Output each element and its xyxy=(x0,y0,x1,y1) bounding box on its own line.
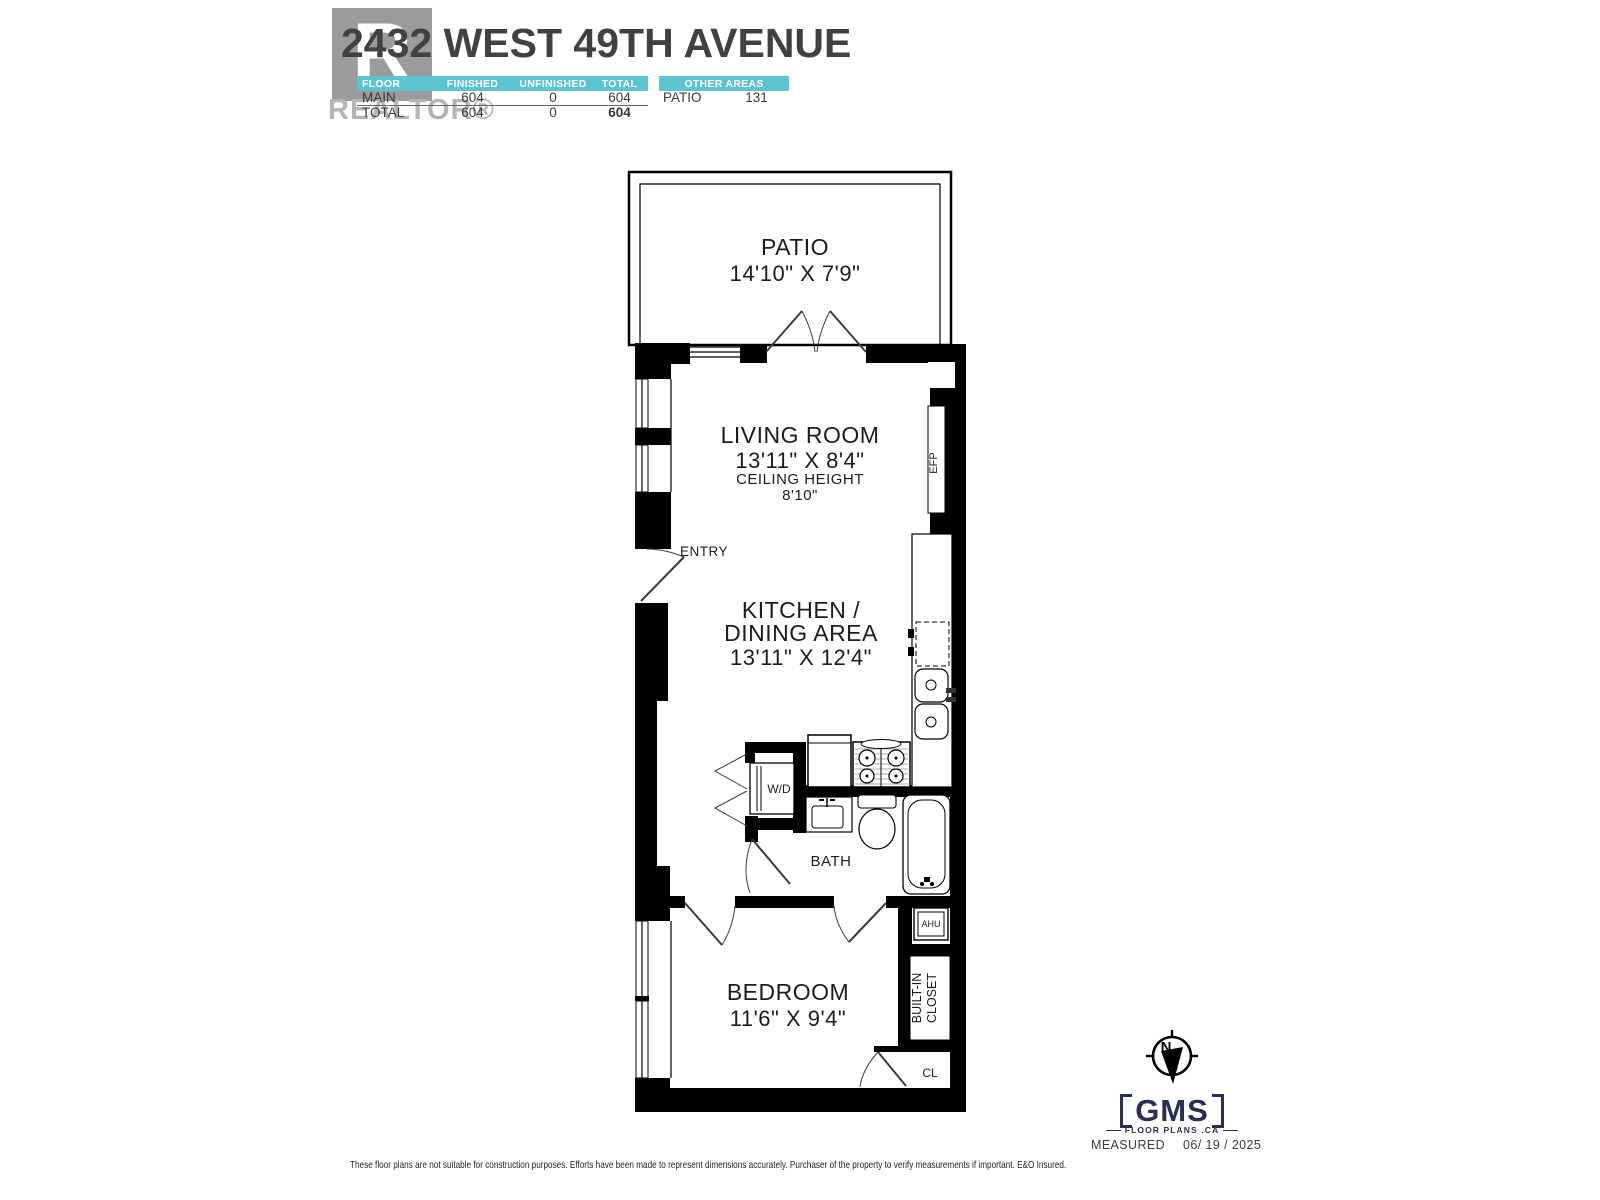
table-row-main: MAIN 604 0 604 xyxy=(357,91,648,105)
entry-label: ENTRY xyxy=(680,544,728,559)
bracket-left-icon xyxy=(1120,1094,1132,1128)
bath-sink xyxy=(806,797,852,832)
col-total: TOTAL xyxy=(591,78,648,90)
area-table: FLOOR FINISHED UNFINISHED TOTAL MAIN 604… xyxy=(357,76,648,120)
disclaimer-text: These floor plans are not suitable for c… xyxy=(350,1159,1066,1171)
builtin-closet-label-2: CLOSET xyxy=(925,973,939,1023)
page-title: 2432 WEST 49TH AVENUE xyxy=(341,20,851,67)
patio-label: PATIO xyxy=(761,234,829,260)
bracket-right-icon xyxy=(1212,1094,1224,1128)
stove xyxy=(853,740,910,788)
cell-floor: MAIN xyxy=(357,91,430,105)
col-floor: FLOOR xyxy=(357,78,430,90)
cell-name: PATIO xyxy=(659,91,724,105)
gms-logo: N GMS FLOOR PLANS .CA xyxy=(1087,1022,1257,1135)
cell-total: 604 xyxy=(591,106,648,120)
ahu-label: AHU xyxy=(921,919,940,929)
living-room-label: LIVING ROOM xyxy=(721,422,880,448)
gms-subtitle: FLOOR PLANS .CA xyxy=(1125,1125,1219,1135)
cell-finished: 604 xyxy=(430,91,515,105)
col-unfinished: UNFINISHED xyxy=(515,78,591,90)
bath-label: BATH xyxy=(811,853,852,870)
cell-finished: 604 xyxy=(430,106,515,120)
wd-label: W/D xyxy=(767,782,791,796)
other-areas-header: OTHER AREAS xyxy=(659,76,789,91)
gms-subtitle-row: FLOOR PLANS .CA xyxy=(1087,1125,1257,1135)
bathtub xyxy=(903,795,950,894)
builtin-closet-label-1: BUILT-IN xyxy=(910,973,924,1023)
kitchen-counter xyxy=(912,534,952,787)
area-table-header: FLOOR FINISHED UNFINISHED TOTAL xyxy=(357,76,648,91)
other-areas-table: OTHER AREAS PATIO 131 xyxy=(659,76,789,105)
cell-value: 131 xyxy=(724,91,789,105)
kitchen-dims: 13'11" X 12'4" xyxy=(730,645,872,670)
table-row-total: TOTAL 604 0 604 xyxy=(357,106,648,120)
ceiling-height-value: 8'10" xyxy=(782,487,818,504)
patio-dims: 14'10" X 7'9" xyxy=(730,261,861,286)
bedroom-dims: 11'6" X 9'4" xyxy=(730,1006,846,1031)
compass-icon: N xyxy=(1140,1022,1204,1092)
cell-unfinished: 0 xyxy=(515,106,591,120)
table-row-patio: PATIO 131 xyxy=(659,91,789,105)
rule-left xyxy=(1106,1130,1121,1131)
measured-row: MEASURED 06/ 19 / 2025 xyxy=(1091,1138,1261,1152)
rule-right xyxy=(1223,1130,1238,1131)
toilet xyxy=(858,795,896,849)
cell-floor: TOTAL xyxy=(357,106,430,120)
ceiling-height-label: CEILING HEIGHT xyxy=(736,471,864,488)
kitchen-fixtures xyxy=(750,534,956,814)
floorplan-page: R REALTOR® 2432 WEST 49TH AVENUE FLOOR F… xyxy=(0,0,1600,1200)
cell-unfinished: 0 xyxy=(515,91,591,105)
gms-name: GMS xyxy=(1135,1094,1209,1128)
measured-date: 06/ 19 / 2025 xyxy=(1183,1138,1261,1152)
efp-label: EFP xyxy=(928,452,940,473)
measured-label: MEASURED xyxy=(1091,1138,1165,1152)
col-finished: FINISHED xyxy=(430,78,515,90)
living-room-dims: 13'11" X 8'4" xyxy=(735,448,864,473)
gms-name-row: GMS xyxy=(1087,1094,1257,1128)
cell-total: 604 xyxy=(591,91,648,105)
floorplan-svg: PATIO 14'10" X 7'9" LIVING ROOM 13'11" X… xyxy=(0,0,1600,1200)
cl-label: CL xyxy=(922,1066,938,1080)
bedroom-label: BEDROOM xyxy=(727,979,849,1005)
refrigerator xyxy=(808,735,851,787)
col-other-areas: OTHER AREAS xyxy=(659,78,789,90)
kitchen-label-2: DINING AREA xyxy=(724,620,878,646)
